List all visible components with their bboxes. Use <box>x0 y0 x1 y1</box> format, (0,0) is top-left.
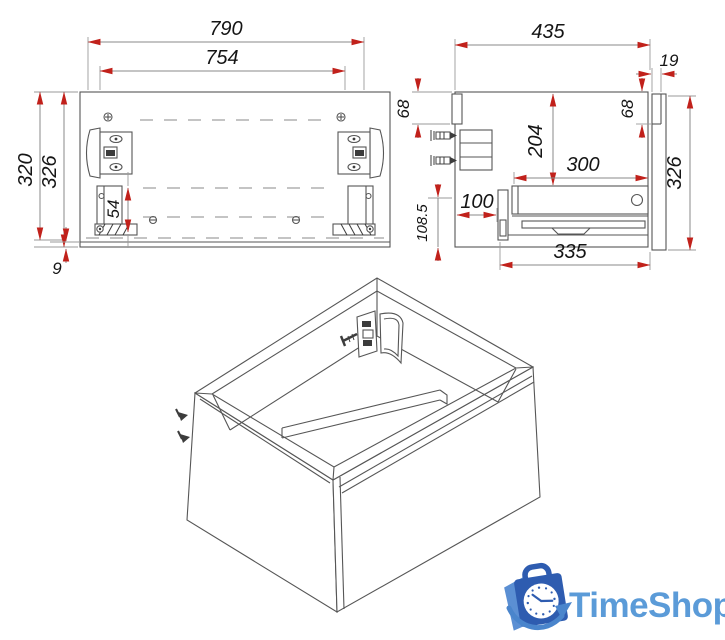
dim-bottom-depth-label: 335 <box>553 241 587 263</box>
dim-front-opening-width: 754 <box>100 47 345 90</box>
dim-slide-offset-label: 54 <box>104 200 123 219</box>
dim-bottom-section-height-label: 108.5 <box>414 204 431 242</box>
isometric-view <box>176 278 540 612</box>
dim-bottom-gap: 9 <box>50 227 80 278</box>
dim-side-height: 326 <box>664 96 696 250</box>
timeshop-logo: TimeShop <box>503 563 725 632</box>
dim-bottom-gap-label: 9 <box>52 259 62 278</box>
side-view-drawer <box>505 186 648 235</box>
dim-front-height-back-label: 320 <box>15 153 37 186</box>
side-view-slide-bracket <box>498 190 508 240</box>
hanging-bracket-right <box>338 128 384 178</box>
logo-brand-text: TimeShop <box>569 586 725 625</box>
iso-side-screws <box>176 409 190 443</box>
hanging-bracket-left <box>87 128 133 178</box>
dim-depth-label: 435 <box>531 21 565 43</box>
wall-screw-top <box>431 130 457 141</box>
dim-depth: 435 <box>455 21 650 90</box>
dim-front-height-front: 326 <box>34 92 78 247</box>
front-view: 790 754 320 326 54 <box>15 18 390 278</box>
dim-panel-thickness-label: 19 <box>660 51 679 70</box>
wall-screw-bottom <box>431 155 457 166</box>
drawing-canvas: 790 754 320 326 54 <box>0 0 725 640</box>
dim-hanger-left-label: 68 <box>394 99 413 118</box>
dim-bracket-offset-label: 100 <box>460 191 493 213</box>
dim-front-height-front-label: 326 <box>39 154 61 188</box>
side-view: 435 19 68 68 204 <box>394 21 696 270</box>
dim-hanger-left: 68 <box>394 78 452 138</box>
dim-side-height-label: 326 <box>664 155 686 189</box>
dim-front-width-label: 790 <box>209 18 242 40</box>
dim-front-opening-width-label: 754 <box>205 47 238 69</box>
technical-drawing-page: 790 754 320 326 54 <box>0 0 725 640</box>
dim-bottom-section-height: 108.5 <box>414 184 452 261</box>
dim-drawer-length-label: 300 <box>566 154 599 176</box>
dim-hanger-right-label: 68 <box>618 99 637 118</box>
shopping-bag-clock-icon <box>503 563 572 632</box>
dim-drawer-top-offset-label: 204 <box>525 124 547 158</box>
